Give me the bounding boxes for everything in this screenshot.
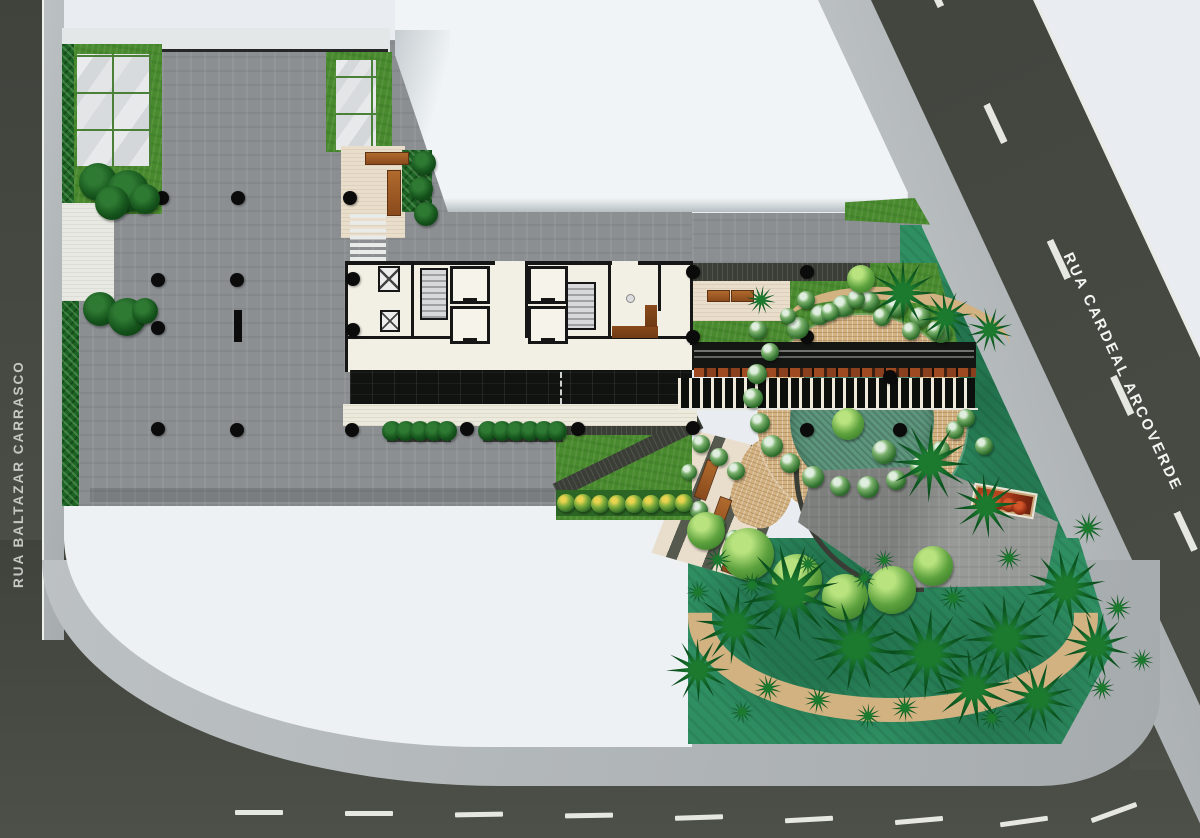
elevator-cell <box>528 266 568 304</box>
slab-bevel-bottom <box>380 198 920 212</box>
paving-shadow-band <box>90 488 560 502</box>
door-gap <box>495 261 525 265</box>
street-name-left: RUA BALTAZAR CARRASCO <box>11 368 27 588</box>
flower-bed <box>556 490 692 516</box>
marble-pavers-nw <box>77 54 151 166</box>
north-garden-patio <box>692 281 790 321</box>
reception-desk <box>612 326 658 338</box>
stair-run <box>420 268 448 320</box>
reception-desk-return <box>645 305 657 327</box>
hedge-patio-nw <box>402 150 432 212</box>
elevator-cell <box>528 306 568 344</box>
stair-run <box>566 282 596 330</box>
interior-wall <box>658 261 661 311</box>
north-garden-dark-paving <box>692 263 870 281</box>
left-sidewalk <box>42 0 64 640</box>
entry-centerline <box>560 372 564 404</box>
shrub-strip-base <box>483 424 563 442</box>
elevator-cell <box>450 266 490 304</box>
elevator-cell <box>450 306 490 344</box>
glass-canopy <box>350 370 692 406</box>
interior-wall <box>608 261 611 338</box>
site-plan: RUA BALTAZAR CARRASCO RUA CARDEAL ARCOVE… <box>0 0 1200 838</box>
pergola-bottom-line <box>678 408 978 410</box>
pergola-rust-row <box>694 368 976 377</box>
freestanding-wall <box>234 310 242 342</box>
pergola-edge-line <box>694 350 974 352</box>
marble-pavers-n2 <box>336 60 376 150</box>
interior-wall <box>411 261 414 338</box>
shrub-strip-base <box>387 424 451 442</box>
wc-fixture <box>626 294 635 303</box>
shaft-xbox <box>380 310 400 332</box>
planter-soil <box>975 487 1033 514</box>
shaft-xbox <box>378 266 400 292</box>
building-wall-east <box>690 261 693 345</box>
door-gap <box>612 261 638 265</box>
building-wall-west <box>345 261 348 372</box>
south-walkway <box>343 404 697 426</box>
white-walkway-nw <box>62 203 114 301</box>
pergola-edge-line <box>694 356 974 358</box>
pedestrian-crosswalk <box>350 214 386 264</box>
pergola-slats <box>678 378 975 408</box>
